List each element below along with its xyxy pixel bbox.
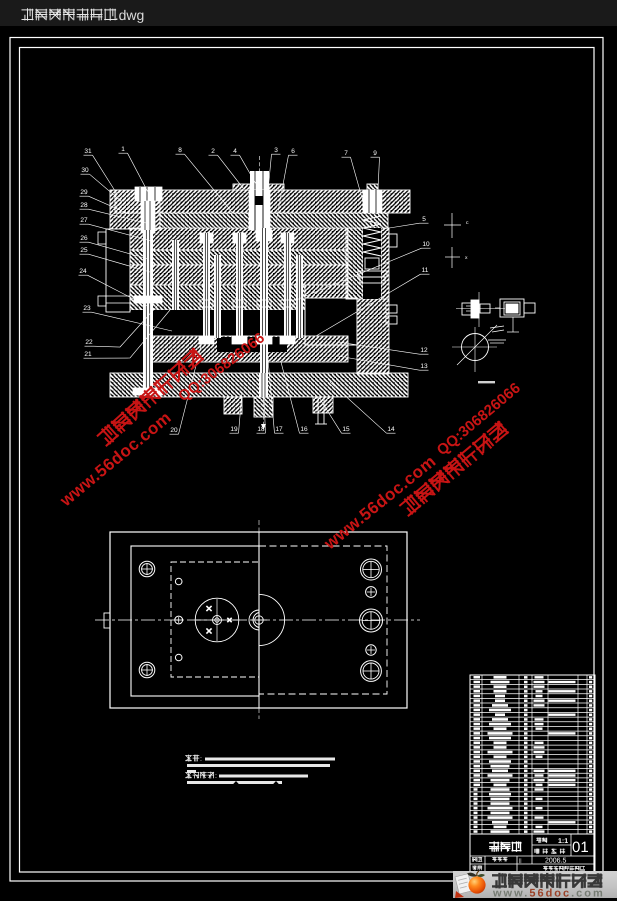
svg-text:29: 29 [80, 189, 88, 196]
svg-text::: : [215, 773, 217, 780]
svg-text:16: 16 [300, 426, 308, 433]
svg-text:22: 22 [85, 339, 93, 346]
svg-text:5: 5 [422, 216, 426, 223]
svg-text::: : [200, 756, 202, 763]
svg-text:2: 2 [211, 148, 215, 155]
svg-text:10: 10 [422, 241, 430, 248]
svg-text:14: 14 [387, 426, 395, 433]
svg-text:11: 11 [422, 267, 429, 274]
svg-text:1: 1 [121, 146, 125, 153]
svg-text:8: 8 [178, 147, 182, 154]
svg-text:27: 27 [80, 217, 88, 224]
svg-text:25: 25 [80, 247, 88, 254]
svg-text:.dwg: .dwg [115, 7, 145, 23]
svg-text:6: 6 [291, 148, 295, 155]
svg-text:30: 30 [81, 167, 89, 174]
svg-text:9: 9 [373, 150, 377, 157]
svg-text:2006.5: 2006.5 [545, 858, 567, 865]
svg-text:4: 4 [233, 148, 237, 155]
svg-text:21: 21 [84, 351, 92, 358]
svg-text:1:1: 1:1 [558, 838, 568, 845]
svg-text:15: 15 [342, 426, 350, 433]
svg-text:24: 24 [79, 268, 87, 275]
svg-text:26: 26 [80, 235, 88, 242]
svg-text:17: 17 [275, 426, 283, 433]
svg-text:www.56doc.com: www.56doc.com [492, 888, 605, 900]
svg-text:12: 12 [420, 347, 428, 354]
svg-text:20: 20 [170, 427, 178, 434]
svg-text:18: 18 [257, 426, 265, 433]
svg-text:31: 31 [84, 148, 92, 155]
svg-text:13: 13 [420, 363, 428, 370]
svg-text:01: 01 [572, 839, 589, 856]
svg-text:7: 7 [344, 150, 348, 157]
svg-text:||: || [519, 858, 522, 864]
svg-text:3: 3 [274, 147, 278, 154]
svg-text:19: 19 [230, 426, 238, 433]
svg-text:28: 28 [80, 202, 88, 209]
svg-text:23: 23 [83, 305, 91, 312]
